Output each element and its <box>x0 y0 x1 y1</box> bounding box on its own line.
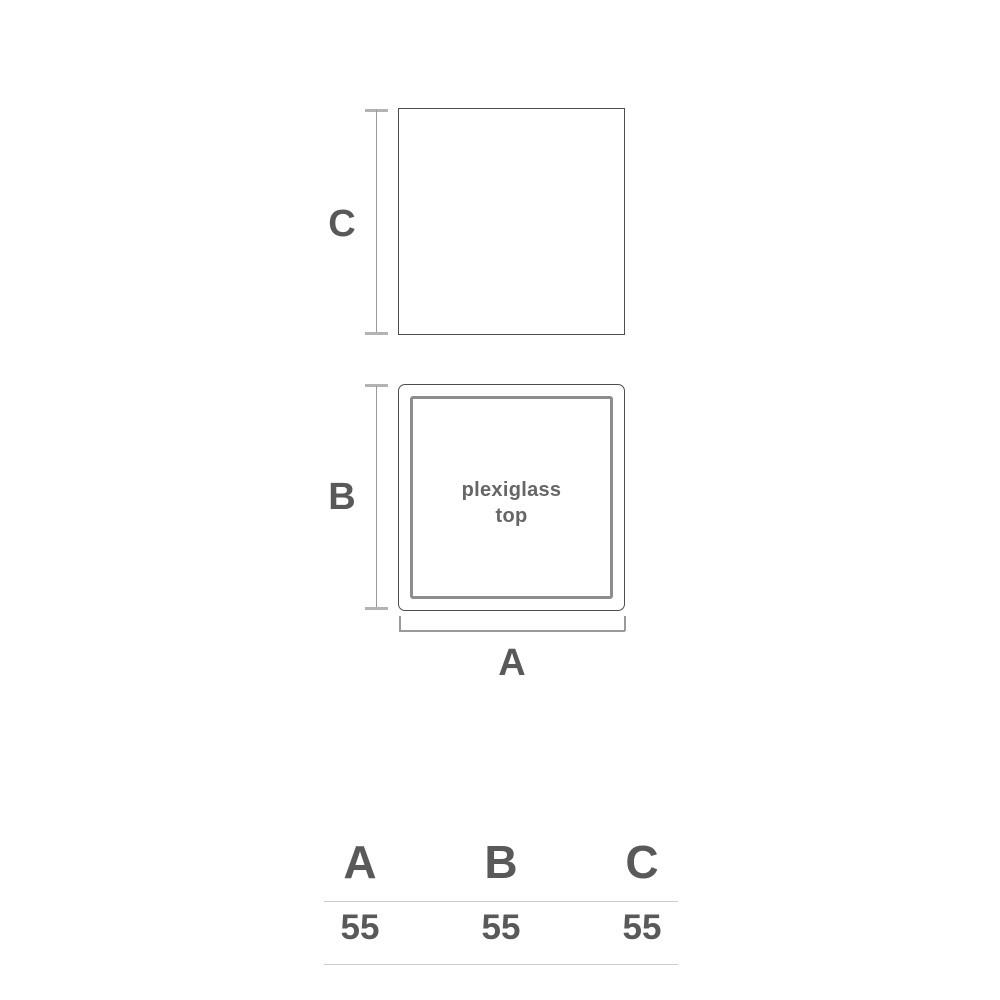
table-header-b: B <box>465 832 537 892</box>
side-view-outline <box>398 108 625 335</box>
table-value-a: 55 <box>324 902 396 954</box>
top-view-outline: plexiglass top <box>398 384 625 611</box>
table-value-b: 55 <box>465 902 537 954</box>
dimensions-table-header-row: A B C <box>324 832 678 892</box>
dimension-label-c: C <box>314 198 370 250</box>
surface-label-line2: top <box>462 503 562 529</box>
dim-b-line <box>376 386 378 608</box>
surface-label: plexiglass top <box>462 477 562 529</box>
dim-a-line <box>399 630 625 632</box>
plexiglass-frame: plexiglass top <box>410 396 613 599</box>
dim-c-bottom-tick <box>365 332 388 335</box>
dim-b-bottom-tick <box>365 607 388 610</box>
dim-a-right-tick <box>624 616 626 631</box>
table-header-a: A <box>324 832 396 892</box>
dim-a-left-tick <box>399 616 401 631</box>
dimensions-table-value-row: 55 55 55 <box>324 902 678 954</box>
dimension-label-b: B <box>314 471 370 523</box>
dim-c-line <box>376 110 378 334</box>
dimensions-table: A B C 55 55 55 <box>324 832 678 965</box>
surface-label-line1: plexiglass <box>462 477 562 503</box>
dimension-label-a: A <box>484 637 540 689</box>
table-header-c: C <box>606 832 678 892</box>
dimension-diagram: C plexiglass top B A A B C 55 55 55 <box>0 0 1000 1000</box>
table-rule-bottom <box>324 964 678 965</box>
table-value-c: 55 <box>606 902 678 954</box>
